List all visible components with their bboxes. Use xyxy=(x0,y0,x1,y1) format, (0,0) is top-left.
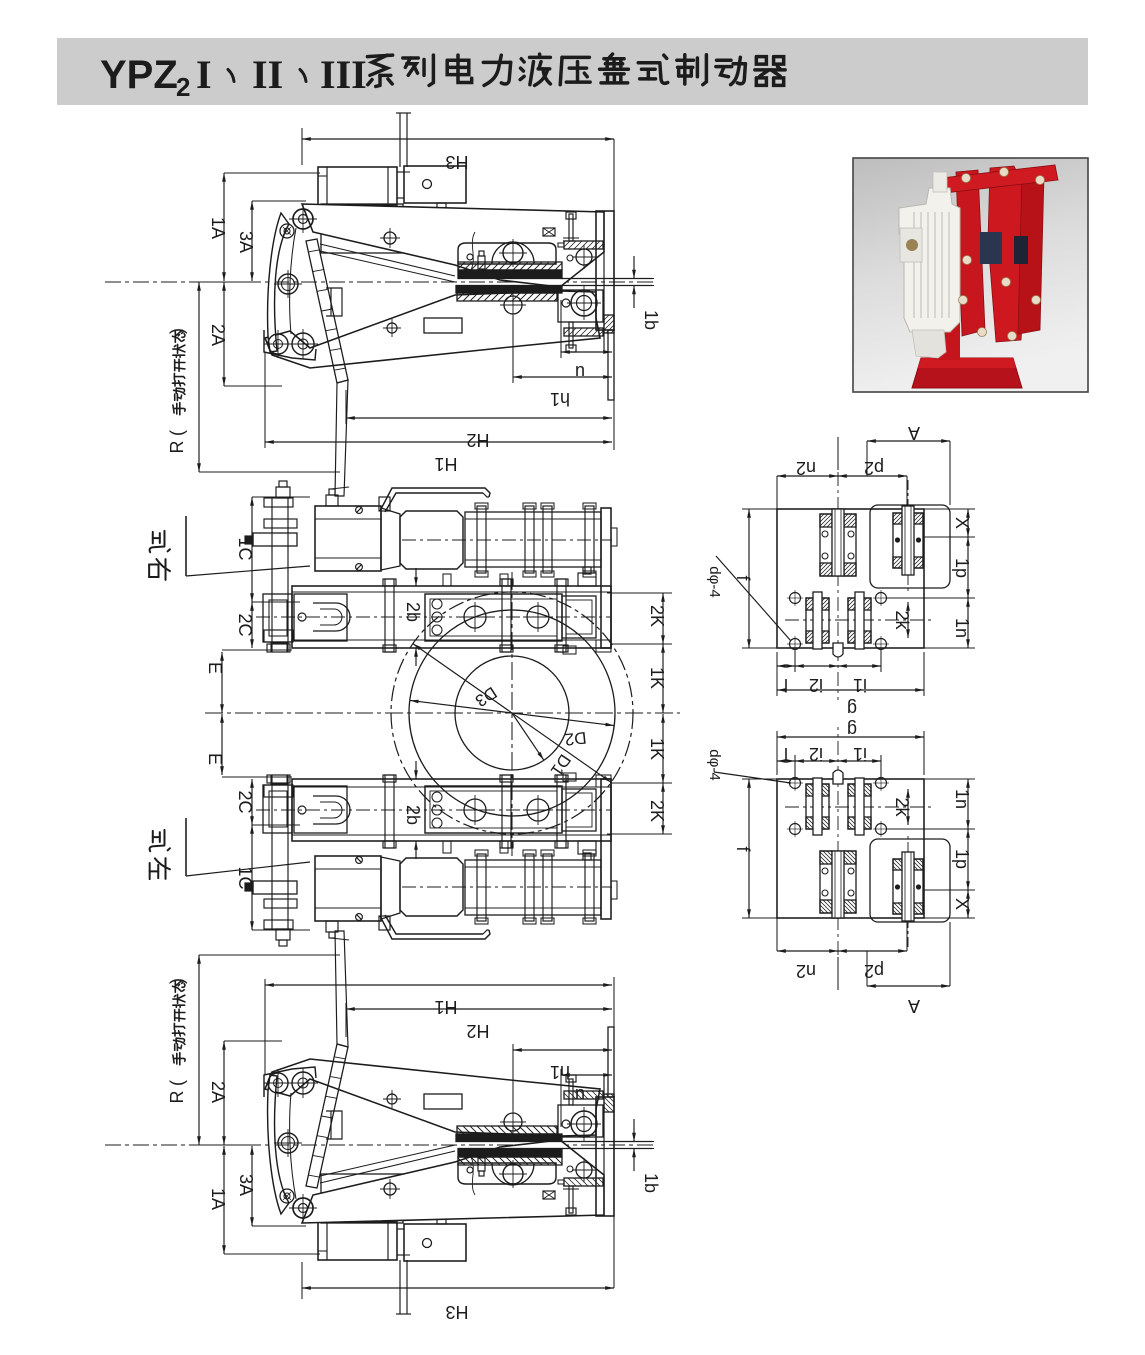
svg-text:1A: 1A xyxy=(208,217,228,239)
svg-text:X: X xyxy=(952,517,972,529)
svg-text:1b: 1b xyxy=(641,310,661,330)
svg-text:H2: H2 xyxy=(466,1021,489,1041)
svg-text:): ) xyxy=(167,978,187,984)
svg-text:H1: H1 xyxy=(434,997,457,1017)
svg-text:1n: 1n xyxy=(952,789,972,809)
svg-text:H3: H3 xyxy=(445,1302,468,1322)
svg-text:2A: 2A xyxy=(208,324,228,346)
svg-text:1n: 1n xyxy=(952,618,972,638)
svg-text:2b: 2b xyxy=(403,805,423,825)
svg-text:2: 2 xyxy=(176,72,190,102)
svg-text:3A: 3A xyxy=(236,1174,256,1196)
svg-text:g: g xyxy=(847,699,857,719)
svg-text:2k: 2k xyxy=(892,797,912,817)
svg-text:R: R xyxy=(167,1091,187,1104)
svg-text:1K: 1K xyxy=(647,667,667,689)
svg-text:1K: 1K xyxy=(647,738,667,760)
svg-text:(: ( xyxy=(167,1080,187,1086)
svg-text:g: g xyxy=(847,720,857,740)
svg-text:1A: 1A xyxy=(208,1188,228,1210)
svg-text:i2: i2 xyxy=(809,744,823,764)
svg-text:A: A xyxy=(908,423,920,443)
svg-text:H1: H1 xyxy=(434,454,457,474)
svg-text:2C: 2C xyxy=(235,613,255,636)
svg-text:I: I xyxy=(196,52,212,97)
svg-text:i2: i2 xyxy=(809,675,823,695)
svg-text:i1: i1 xyxy=(853,744,867,764)
svg-text:III: III xyxy=(320,52,367,97)
svg-text:u: u xyxy=(575,362,585,382)
svg-text:h1: h1 xyxy=(550,1062,570,1082)
svg-text:n2: n2 xyxy=(796,961,816,981)
svg-text:h1: h1 xyxy=(550,389,570,409)
svg-text:2b: 2b xyxy=(403,602,423,622)
svg-text:E: E xyxy=(205,753,225,765)
svg-text:1b: 1b xyxy=(641,1173,661,1193)
svg-text:1p: 1p xyxy=(952,558,972,578)
svg-text:dφ-4: dφ-4 xyxy=(706,749,723,780)
svg-text:2C: 2C xyxy=(235,790,255,813)
svg-text:dφ-4: dφ-4 xyxy=(706,566,723,597)
svg-text:E: E xyxy=(205,662,225,674)
svg-text:2K: 2K xyxy=(647,800,667,822)
svg-text:(: ( xyxy=(167,430,187,436)
svg-text:): ) xyxy=(167,328,187,334)
svg-text:R: R xyxy=(167,441,187,454)
svg-text:l: l xyxy=(784,744,788,764)
svg-text:YPZ: YPZ xyxy=(100,53,178,97)
svg-text:2A: 2A xyxy=(208,1081,228,1103)
svg-text:2K: 2K xyxy=(647,605,667,627)
svg-text:D2: D2 xyxy=(564,728,588,749)
svg-text:3A: 3A xyxy=(236,231,256,253)
svg-text:i1: i1 xyxy=(853,675,867,695)
svg-text:A: A xyxy=(908,996,920,1016)
svg-text:n2: n2 xyxy=(796,458,816,478)
svg-text:H2: H2 xyxy=(466,430,489,450)
svg-text:u: u xyxy=(575,1085,585,1105)
svg-text:1C: 1C xyxy=(235,537,255,560)
svg-text:H3: H3 xyxy=(445,152,468,172)
svg-text:l: l xyxy=(784,675,788,695)
svg-text:II: II xyxy=(252,52,283,97)
svg-text:X: X xyxy=(952,898,972,910)
svg-text:2k: 2k xyxy=(892,610,912,630)
svg-text:1p: 1p xyxy=(952,849,972,869)
